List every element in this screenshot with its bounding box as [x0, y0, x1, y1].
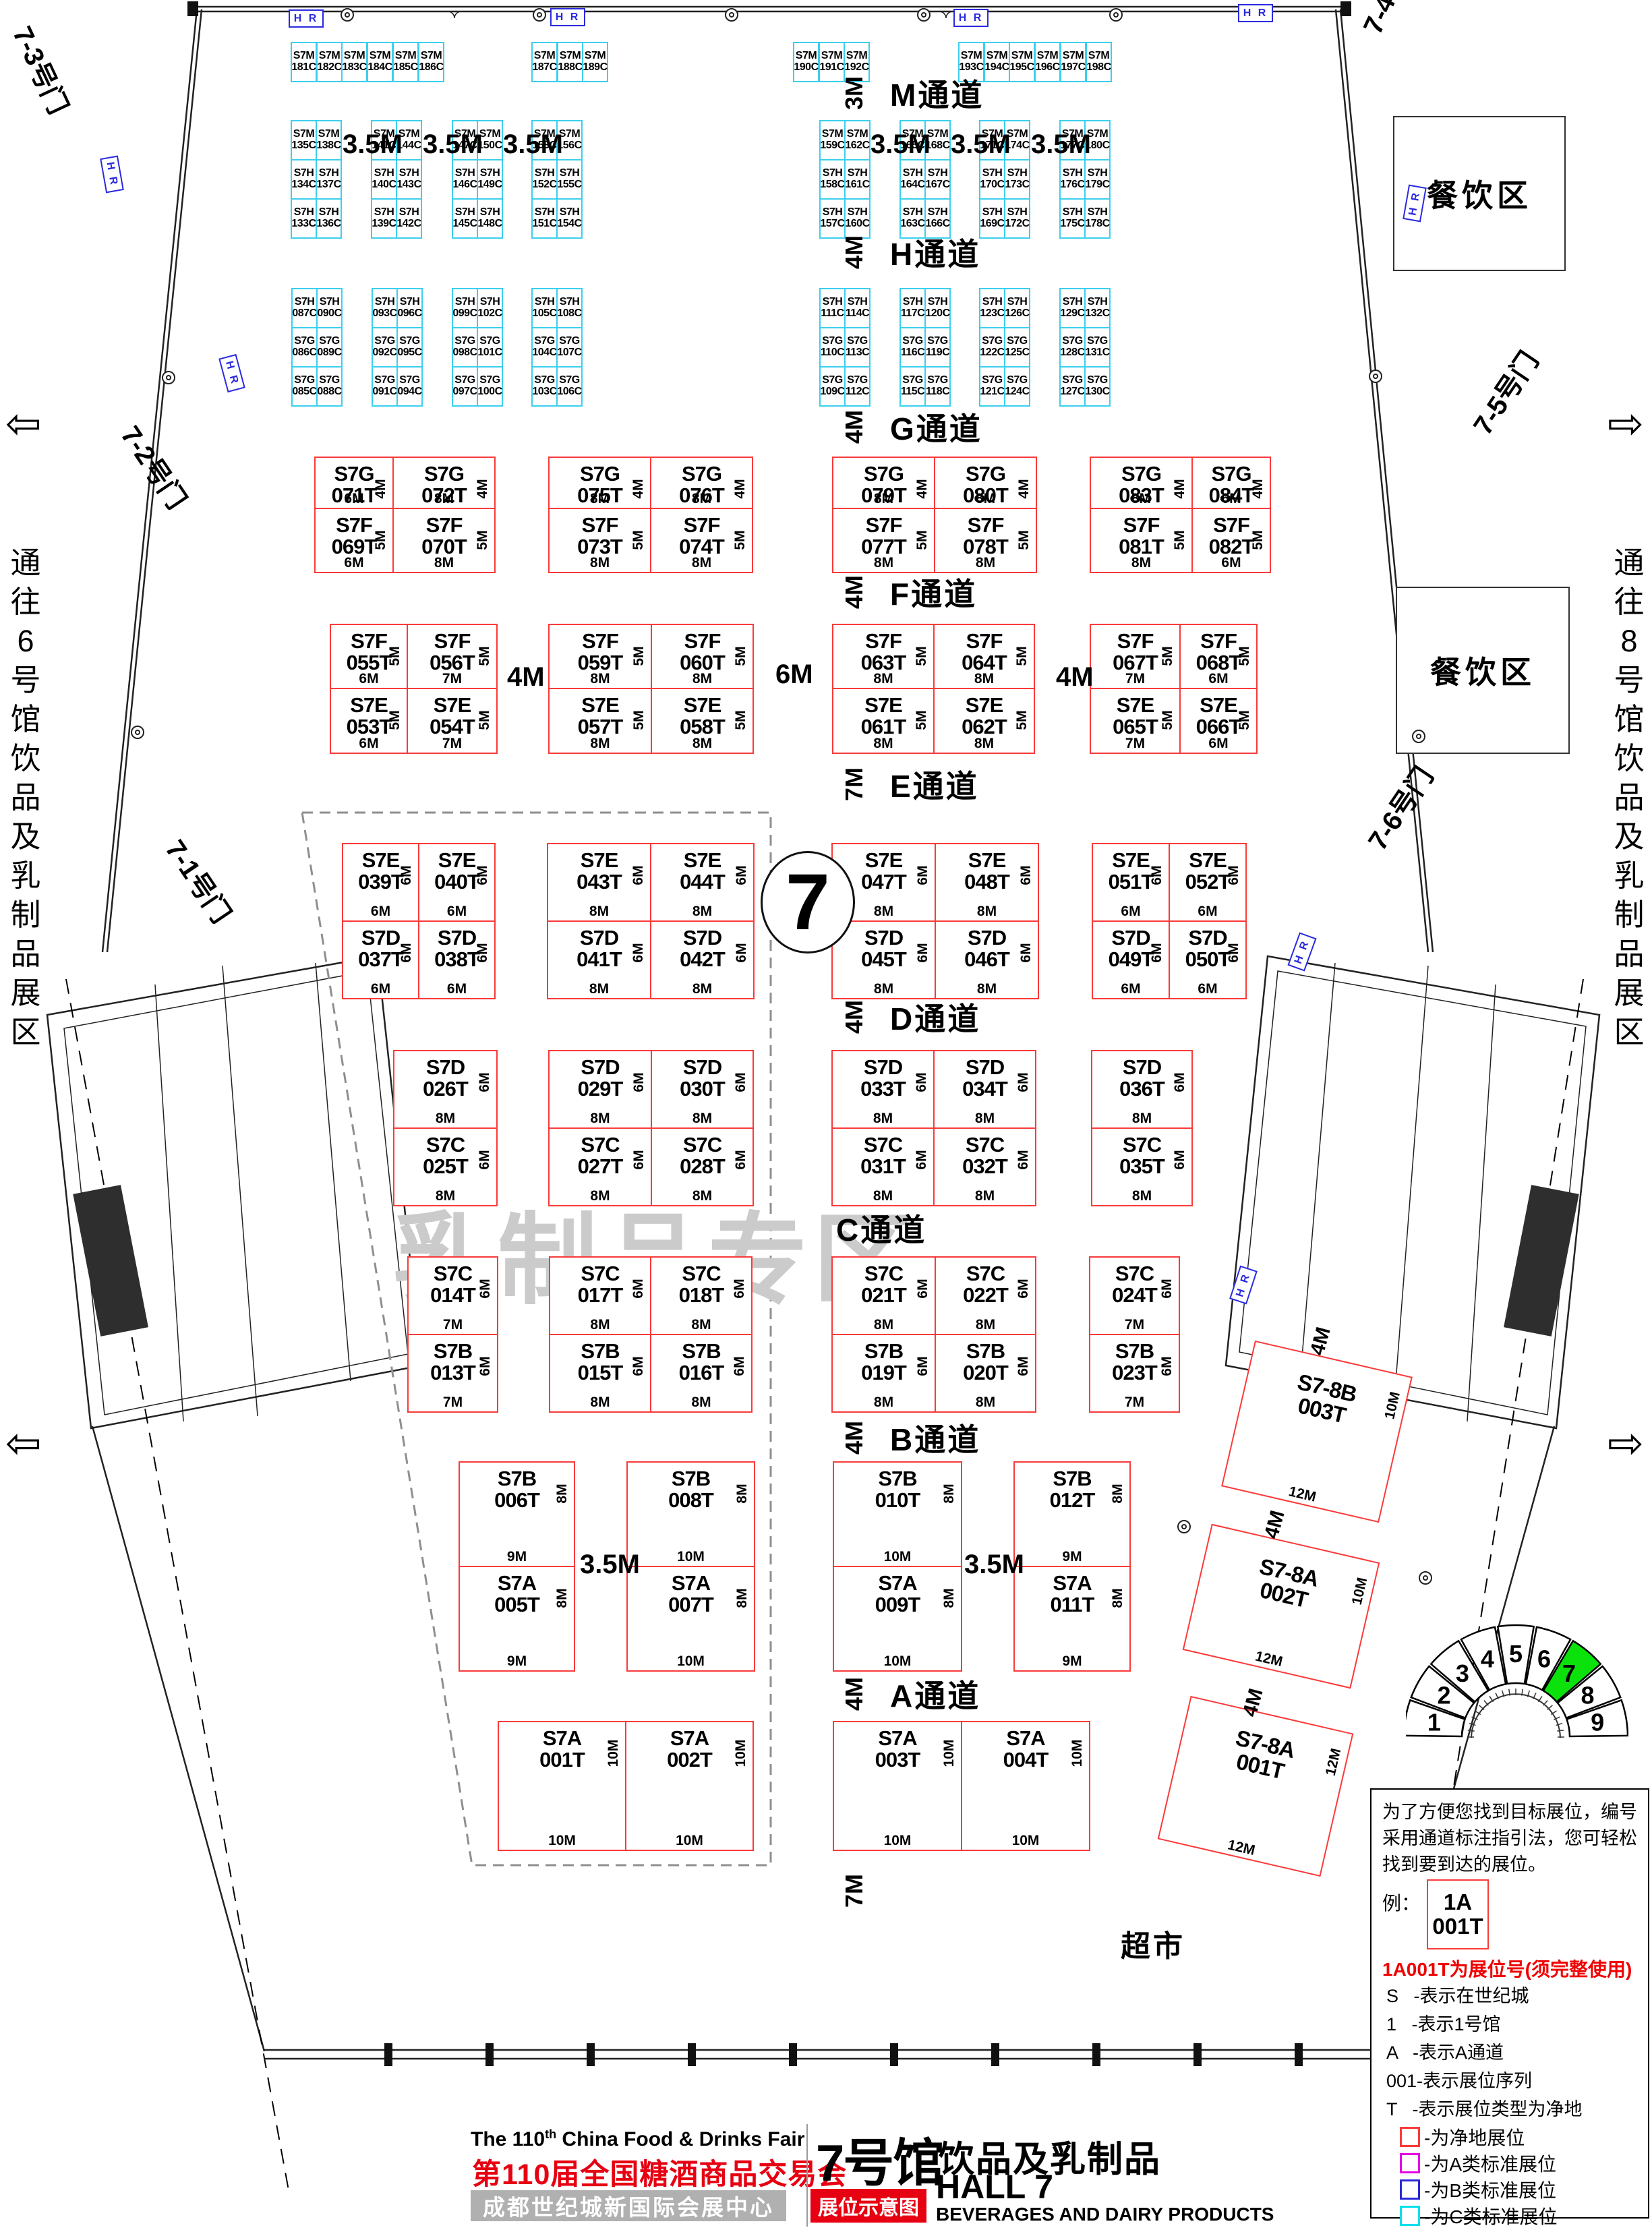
booth-side-dim: 5M — [733, 637, 749, 676]
booth-S7H-154C: S7H154C — [556, 198, 583, 239]
booth-S7H-111C: S7H111C — [819, 288, 846, 328]
booth-S7D-049T: S7D049T6M6M — [1092, 920, 1170, 999]
booth-side-dim: 6M — [477, 1347, 494, 1386]
booth-side-dim: 10M — [941, 1734, 957, 1773]
booth-S7E-058T: S7E058T8M5M — [651, 688, 754, 754]
booth-S7G-131C: S7G131C — [1084, 327, 1111, 368]
booth-side-dim: 5M — [477, 701, 493, 740]
booth-S7M-162C: S7M162C — [844, 120, 871, 160]
booth-S7H-146C: S7H146C — [452, 159, 478, 200]
booth-side-dim: 6M — [477, 1269, 494, 1308]
booth-bottom-dim: 8M — [652, 1111, 753, 1127]
booth-S7H-102C: S7H102C — [477, 288, 503, 328]
booth-S7D-045T: S7D045T8M6M — [831, 920, 936, 999]
booth-S7G-116C: S7G116C — [899, 327, 926, 368]
booth-side-dim: 6M — [732, 1269, 748, 1308]
booth-side-dim: 5M — [475, 521, 491, 560]
booth-side-dim: 4M — [732, 469, 748, 508]
booth-S7H-133C: S7H133C — [291, 198, 317, 239]
booth-S7C-024T: S7C024T7M6M — [1089, 1256, 1180, 1335]
booth-side-dim: 6M — [475, 933, 491, 972]
booth-side-dim: 4M — [475, 469, 491, 508]
booth-S7H-099C: S7H099C — [452, 288, 478, 328]
booth-side-dim: 5M — [630, 521, 647, 560]
arrow-to-hall6-icon: ⇦ — [5, 402, 42, 445]
booth-S7G-084T: S7G084T6M4M — [1191, 457, 1271, 509]
fair-title-cn: 第110届全国糖酒商品交易会 — [472, 2151, 847, 2193]
column-marker-icon — [725, 8, 738, 22]
booth-side-dim: 5M — [387, 637, 403, 676]
booth-bottom-dim: 6M — [1170, 981, 1245, 997]
legend-item: -为A类标准展位 — [1400, 2150, 1637, 2176]
booth-S7F-055T: S7F055T6M5M — [330, 624, 408, 689]
booth-side-dim: 8M — [734, 1579, 750, 1618]
booth-bottom-dim: 6M — [1093, 981, 1169, 997]
booth-S7F-059T: S7F059T8M5M — [548, 624, 652, 689]
booth-S7F-069T: S7F069T6M5M — [314, 508, 394, 573]
booth-S7B-013T: S7B013T7M6M — [407, 1334, 498, 1413]
column-marker-icon — [1419, 1571, 1432, 1585]
booth-side-dim: 6M — [1172, 1140, 1188, 1179]
booth-S7G-103C: S7G103C — [531, 366, 558, 407]
booth-side-dim: 10M — [606, 1734, 622, 1773]
legend-items: -为净地展位-为A类标准展位-为B类标准展位-为C类标准展位-为D类标准展位 — [1382, 2123, 1637, 2230]
booth-bottom-dim: 6M — [419, 981, 494, 997]
booth-side-dim: 6M — [1015, 1063, 1032, 1102]
booth-S7E-054T: S7E054T7M5M — [407, 688, 498, 754]
booth-bottom-dim: 8M — [652, 1188, 753, 1204]
booth-side-dim: 6M — [733, 1140, 749, 1179]
booth-S7H-152C: S7H152C — [531, 159, 558, 200]
booth-bottom-dim: 9M — [1015, 1653, 1129, 1670]
booth-side-dim: 10M — [733, 1734, 749, 1773]
booth-side-dim: 8M — [554, 1579, 570, 1618]
booth-S7G-124C: S7G124C — [1004, 366, 1030, 407]
gap-width-label: 3.5M — [951, 129, 1011, 160]
booth-S7F-074T: S7F074T8M5M — [650, 508, 753, 573]
booth-side-dim: 6M — [1226, 933, 1242, 972]
booth-side-dim: 8M — [1110, 1474, 1126, 1513]
booth-bottom-dim: 6M — [343, 904, 418, 920]
booth-side-dim: 6M — [1015, 1140, 1032, 1179]
booth-S7H-158C: S7H158C — [819, 159, 846, 200]
dining-area: 餐饮区 — [1396, 587, 1570, 754]
booth-S7H-105C: S7H105C — [531, 288, 558, 328]
booth-bottom-dim: 8M — [935, 1188, 1035, 1204]
column-marker-icon — [131, 726, 144, 739]
booth-S7C-017T: S7C017T8M6M — [549, 1256, 651, 1335]
booth-S7H-173C: S7H173C — [1004, 159, 1030, 200]
booth-bottom-dim: 8M — [651, 1395, 751, 1411]
map-type-badge: 展位示意图 — [810, 2189, 926, 2223]
booth-S7E-040T: S7E040T6M6M — [418, 843, 496, 922]
booth-side-dim: 5M — [631, 637, 647, 676]
booth-S7G-083T: S7G083T8M4M — [1090, 457, 1193, 509]
booth-S7M-196C: S7M196C — [1034, 42, 1061, 82]
booth-S7C-032T: S7C032T8M6M — [933, 1127, 1036, 1206]
booth-bottom-dim: 9M — [1015, 1549, 1129, 1565]
booth-side-dim: 6M — [1172, 1063, 1188, 1102]
side-label-left: 通往6号馆饮品及乳制品展区 — [8, 544, 43, 1052]
booth-S7F-067T: S7F067T7M5M — [1090, 624, 1181, 689]
booth-S7M-183C: S7M183C — [341, 42, 367, 82]
minimap-hall-number: 1 — [1427, 1709, 1441, 1736]
booth-S7D-038T: S7D038T6M6M — [418, 920, 496, 999]
booth-S7G-094C: S7G094C — [396, 366, 423, 407]
booth-bottom-dim: 10M — [628, 1549, 754, 1565]
booth-S7E-052T: S7E052T6M6M — [1169, 843, 1247, 922]
booth-S7F-056T: S7F056T7M5M — [407, 624, 498, 689]
booth-S7F-077T: S7F077T8M5M — [832, 508, 935, 573]
booth-side-dim: 5M — [732, 521, 748, 560]
booth-S7H-090C: S7H090C — [316, 288, 343, 328]
minimap-hall-number: 5 — [1509, 1640, 1523, 1668]
booth-S7G-098C: S7G098C — [452, 327, 478, 368]
booth-S7G-089C: S7G089C — [316, 327, 343, 368]
booth-side-dim: 5M — [914, 701, 930, 740]
booth-S7B-023T: S7B023T7M6M — [1089, 1334, 1180, 1413]
booth-S7H-093C: S7H093C — [372, 288, 398, 328]
fire-hydrant-icon: H R — [1238, 4, 1273, 22]
booth-bottom-dim: 8M — [548, 904, 650, 920]
aisle-label-E: 7ME通道 — [836, 767, 979, 802]
hall-name-en: HALL 7 — [936, 2167, 1053, 2206]
booth-side-dim: 5M — [1250, 521, 1266, 560]
booth-side-dim: 5M — [373, 521, 389, 560]
booth-S7G-125C: S7G125C — [1004, 327, 1030, 368]
booth-bottom-dim: 8M — [936, 1395, 1035, 1411]
code-decode-lines: S -表示在世纪城1 -表示1号馆A -表示A通道001-表示展位序列T -表示… — [1382, 1982, 1637, 2123]
booth-bottom-dim: 10M — [834, 1549, 961, 1565]
booth-bottom-dim: 8M — [833, 1188, 933, 1204]
column-marker-icon — [917, 8, 931, 22]
booth-S7B-006T: S7B006T9M8M — [459, 1461, 575, 1567]
booth-S7M-194C: S7M194C — [984, 42, 1010, 82]
aisle-label-F: 4MF通道 — [836, 575, 977, 610]
column-marker-icon — [162, 371, 175, 384]
booth-S7G-119C: S7G119C — [924, 327, 951, 368]
booth-side-dim: 6M — [1149, 933, 1165, 972]
booth-S7H-139C: S7H139C — [371, 198, 397, 239]
gap-width-label: 3.5M — [871, 129, 931, 160]
booth-side-dim: 5M — [1014, 637, 1030, 676]
booth-S7F-063T: S7F063T8M5M — [832, 624, 935, 689]
column-marker-icon — [1109, 8, 1123, 22]
booth-side-dim: 5M — [1160, 701, 1176, 740]
booth-S7H-134C: S7H134C — [291, 159, 317, 200]
booth-S7C-022T: S7C022T8M6M — [935, 1256, 1036, 1335]
booth-S7D-033T: S7D033T8M6M — [831, 1050, 935, 1129]
booth-side-dim: 6M — [630, 1269, 647, 1308]
arrow-to-hall8-icon: ⇨ — [1607, 402, 1644, 445]
booth-S7G-101C: S7G101C — [477, 327, 503, 368]
booth-side-dim: 6M — [734, 856, 750, 895]
booth-S7M-197C: S7M197C — [1060, 42, 1086, 82]
booth-side-dim: 6M — [1159, 1347, 1175, 1386]
legend-panel: 为了方便您找到目标展位，编号采用通道标注指引法，您可轻松找到要到达的展位。 例：… — [1370, 1788, 1649, 2219]
gap-width-label: 3.5M — [423, 129, 483, 160]
booth-bottom-dim: 7M — [1090, 1395, 1179, 1411]
booth-S7E-044T: S7E044T8M6M — [650, 843, 755, 922]
booth-S7G-076T: S7G076T8M4M — [650, 457, 753, 509]
booth-S7A-011T: S7A011T9M8M — [1013, 1566, 1131, 1672]
booth-S7G-115C: S7G115C — [899, 366, 926, 407]
booth-S7C-025T: S7C025T8M6M — [393, 1127, 498, 1206]
booth-side-dim: 5M — [477, 637, 493, 676]
booth-S7G-118C: S7G118C — [924, 366, 951, 407]
aisle-label-M: 3MM通道 — [836, 76, 984, 111]
booth-S7C-021T: S7C021T8M6M — [831, 1256, 936, 1335]
booth-S7H-096C: S7H096C — [396, 288, 423, 328]
booth-side-dim: 5M — [1237, 637, 1253, 676]
booth-side-dim: 6M — [631, 1140, 647, 1179]
booth-S7M-198C: S7M198C — [1086, 42, 1112, 82]
booth-S7A-009T: S7A009T10M8M — [833, 1566, 962, 1672]
booth-S7G-122C: S7G122C — [979, 327, 1005, 368]
gap-width-label: 4M — [507, 662, 545, 693]
booth-side-dim: 8M — [554, 1474, 570, 1513]
decode-line: 001-表示展位序列 — [1386, 2067, 1637, 2095]
minimap-hall-number: 7 — [1562, 1660, 1576, 1687]
booth-S7H-155C: S7H155C — [556, 159, 583, 200]
booth-side-dim: 6M — [399, 856, 415, 895]
gap-width-label: 3.5M — [964, 1550, 1024, 1580]
booth-S7M-195C: S7M195C — [1009, 42, 1035, 82]
booth-side-dim: 4M — [373, 469, 389, 508]
booth-S7E-066T: S7E066T6M5M — [1179, 688, 1258, 754]
booth-side-dim: 8M — [941, 1579, 957, 1618]
booth-S7E-048T: S7E048T8M6M — [935, 843, 1039, 922]
booth-bottom-dim: 10M — [499, 1833, 625, 1849]
booth-side-dim: 6M — [631, 1063, 647, 1102]
booth-side-dim: 6M — [477, 1140, 493, 1179]
legend-item: -为B类标准展位 — [1400, 2176, 1637, 2202]
legend-item: -为C类标准展位 — [1400, 2202, 1637, 2229]
booth-S7H-108C: S7H108C — [556, 288, 583, 328]
aisle-label-A: 4MA通道 — [836, 1676, 980, 1711]
booth-S7B-010T: S7B010T10M8M — [833, 1461, 962, 1567]
booth-S7H-142C: S7H142C — [396, 198, 422, 239]
booth-bottom-dim: 8M — [833, 1111, 933, 1127]
booth-bottom-dim: 6M — [1093, 904, 1169, 920]
booth-S7E-065T: S7E065T7M5M — [1090, 688, 1181, 754]
booth-S7A-001T: S7A001T10M10M — [498, 1721, 626, 1851]
gap-width-label: 3.5M — [503, 129, 563, 160]
booth-S7G-104C: S7G104C — [531, 327, 558, 368]
booth-side-dim: 6M — [915, 1347, 931, 1386]
booth-bottom-dim: 6M — [343, 981, 418, 997]
booth-S7H-151C: S7H151C — [531, 198, 558, 239]
decode-line: A -表示A通道 — [1386, 2038, 1637, 2067]
booth-S7G-071T: S7G071T6M4M — [314, 457, 394, 509]
booth-S7F-073T: S7F073T8M5M — [548, 508, 651, 573]
booth-side-dim: 6M — [915, 1269, 931, 1308]
booth-S7G-088C: S7G088C — [316, 366, 343, 407]
decode-line: T -表示展位类型为净地 — [1386, 2095, 1637, 2123]
booth-bottom-dim: 10M — [626, 1833, 753, 1849]
booth-side-dim: 4M — [1250, 469, 1266, 508]
legend-swatch — [1400, 2153, 1420, 2173]
booth-S7G-085C: S7G085C — [291, 366, 318, 407]
gap-width-label: 3.5M — [580, 1550, 640, 1580]
booth-bottom-dim: 8M — [936, 904, 1038, 920]
booth-S7E-057T: S7E057T8M5M — [548, 688, 652, 754]
hall7-floor-plan: 乳制品专区 7 超市 ⇦ ⇦ ⇨ ⇨ 通往6号馆饮品及乳制品展区 通往8号馆饮品… — [0, 0, 1652, 2230]
booth-S7E-062T: S7E062T8M5M — [933, 688, 1035, 754]
fair-title-sup: th — [545, 2128, 556, 2141]
booth-S7M-159C: S7M159C — [819, 120, 846, 160]
booth-S7E-039T: S7E039T6M6M — [342, 843, 419, 922]
booth-S7D-034T: S7D034T8M6M — [933, 1050, 1036, 1129]
gap-width-label: 3.5M — [343, 129, 403, 160]
booth-S7H-164C: S7H164C — [899, 159, 926, 200]
booth-S7C-031T: S7C031T8M6M — [831, 1127, 935, 1206]
booth-S7H-148C: S7H148C — [477, 198, 503, 239]
booth-S7C-027T: S7C027T8M6M — [548, 1127, 652, 1206]
booth-S7M-186C: S7M186C — [418, 42, 444, 82]
booth-bottom-dim: 8M — [935, 1111, 1035, 1127]
booth-S7H-176C: S7H176C — [1059, 159, 1086, 200]
booth-side-dim: 6M — [914, 1063, 930, 1102]
booth-S7G-110C: S7G110C — [819, 327, 846, 368]
minimap-hall-number: 8 — [1581, 1682, 1595, 1709]
aisle-label-B: 4MB通道 — [836, 1420, 980, 1455]
booth-side-dim: 8M — [734, 1474, 750, 1513]
booth-S7H-145C: S7H145C — [452, 198, 478, 239]
booth-S7H-149C: S7H149C — [477, 159, 503, 200]
booth-S7H-117C: S7H117C — [899, 288, 926, 328]
booth-S7M-185C: S7M185C — [392, 42, 419, 82]
booth-S7B-019T: S7B019T8M6M — [831, 1334, 936, 1413]
booth-S7H-178C: S7H178C — [1084, 198, 1111, 239]
aisle-label-C: C通道 — [836, 1210, 926, 1245]
booth-S7A-003T: S7A003T10M10M — [833, 1721, 962, 1851]
fire-hydrant-icon: H R — [953, 9, 989, 27]
example-label: 例： — [1382, 1889, 1420, 1916]
booth-S7F-068T: S7F068T6M5M — [1179, 624, 1258, 689]
booth-S7H-170C: S7H170C — [979, 159, 1005, 200]
column-marker-icon — [1369, 370, 1382, 383]
example-note: 1A001T为展位号(须完整使用) — [1382, 1955, 1637, 1982]
decode-line: S -表示在世纪城 — [1386, 1982, 1637, 2010]
booth-bottom-dim: 8M — [550, 1111, 651, 1127]
booth-S7G-112C: S7G112C — [844, 366, 871, 407]
booth-S7M-184C: S7M184C — [367, 42, 393, 82]
booth-bottom-dim: 8M — [550, 1188, 651, 1204]
booth-S7M-188C: S7M188C — [557, 42, 583, 82]
booth-S7F-081T: S7F081T8M5M — [1090, 508, 1193, 573]
booth-bottom-dim: 8M — [833, 1395, 935, 1411]
minimap-hall-number: 2 — [1437, 1682, 1450, 1709]
booth-S7A-007T: S7A007T10M8M — [626, 1566, 755, 1672]
booth-side-dim: 4M — [914, 469, 931, 508]
gap-width-label: 4M — [1056, 662, 1094, 693]
booth-S7D-026T: S7D026T8M6M — [393, 1050, 498, 1129]
booth-bottom-dim: 6M — [419, 904, 494, 920]
booth-side-dim: 8M — [1110, 1579, 1126, 1618]
aisle-label-H: 4MH通道 — [836, 235, 980, 270]
booth-S7G-079T: S7G079T8M4M — [832, 457, 935, 509]
booth-S7B-012T: S7B012T9M8M — [1013, 1461, 1131, 1567]
booth-bottom-dim: 10M — [834, 1833, 961, 1849]
booth-S7G-121C: S7G121C — [979, 366, 1005, 407]
booth-side-dim: 6M — [732, 1347, 748, 1386]
fire-hydrant-icon: H R — [550, 8, 585, 26]
booth-side-dim: 4M — [1172, 469, 1188, 508]
booth-bottom-dim: 9M — [460, 1549, 574, 1565]
column-marker-icon — [1177, 1520, 1191, 1533]
booth-bottom-dim: 8M — [651, 981, 753, 997]
booth-side-dim: 6M — [1018, 856, 1034, 895]
booth-side-dim: 5M — [1016, 521, 1032, 560]
booth-S7G-080T: S7G080T8M4M — [934, 457, 1037, 509]
booth-S7H-175C: S7H175C — [1059, 198, 1086, 239]
booth-S7F-070T: S7F070T8M5M — [392, 508, 496, 573]
booth-side-dim: 5M — [1014, 701, 1030, 740]
booth-S7D-029T: S7D029T8M6M — [548, 1050, 652, 1129]
booth-side-dim: 6M — [915, 856, 931, 895]
column-marker-icon — [1412, 730, 1425, 743]
fair-title-en: The 110th China Food & Drinks Fair — [471, 2128, 804, 2151]
booth-S7H-114C: S7H114C — [844, 288, 871, 328]
booth-S7H-169C: S7H169C — [979, 198, 1005, 239]
booth-side-dim: 6M — [1018, 933, 1034, 972]
booth-side-dim: 5M — [914, 637, 930, 676]
booth-S7G-075T: S7G075T8M4M — [548, 457, 651, 509]
minimap-hall-number: 3 — [1456, 1660, 1469, 1687]
booth-bottom-dim: 8M — [651, 1317, 751, 1333]
left-stairs-hatch — [73, 1185, 148, 1337]
booth-S7H-143C: S7H143C — [396, 159, 422, 200]
booth-bottom-dim: 8M — [651, 904, 753, 920]
booth-side-dim: 6M — [399, 933, 415, 972]
booth-S7B-015T: S7B015T8M6M — [549, 1334, 651, 1413]
booth-side-dim: 6M — [733, 1063, 749, 1102]
booth-S7H-172C: S7H172C — [1004, 198, 1030, 239]
booth-S7M-190C: S7M190C — [793, 42, 819, 82]
booth-S7C-028T: S7C028T8M6M — [651, 1127, 754, 1206]
booth-S7D-036T: S7D036T8M6M — [1091, 1050, 1193, 1129]
booth-S7G-097C: S7G097C — [452, 366, 478, 407]
gap-width-label: 3.5M — [1031, 129, 1091, 160]
booth-S7E-061T: S7E061T8M5M — [832, 688, 935, 754]
column-marker-icon — [341, 8, 354, 22]
booth-S7A-005T: S7A005T9M8M — [459, 1566, 575, 1672]
booth-S7H-132C: S7H132C — [1084, 288, 1111, 328]
booth-S7H-161C: S7H161C — [844, 159, 871, 200]
booth-S7A-004T: S7A004T10M10M — [961, 1721, 1090, 1851]
booth-side-dim: 5M — [1172, 521, 1188, 560]
booth-S7G-127C: S7G127C — [1059, 366, 1086, 407]
booth-S7H-129C: S7H129C — [1059, 288, 1086, 328]
booth-S7G-107C: S7G107C — [556, 327, 583, 368]
booth-S7H-140C: S7H140C — [371, 159, 397, 200]
legend-swatch — [1400, 2206, 1420, 2226]
booth-S7H-120C: S7H120C — [924, 288, 951, 328]
column-marker-icon — [533, 8, 546, 22]
booth-side-dim: 6M — [914, 1140, 930, 1179]
booth-S7A-002T: S7A002T10M10M — [625, 1721, 754, 1851]
example-booth: 1A001T — [1427, 1879, 1489, 1949]
booth-bottom-dim: 8M — [936, 1317, 1035, 1333]
booth-S7D-050T: S7D050T6M6M — [1169, 920, 1247, 999]
booth-S7G-092C: S7G092C — [372, 327, 398, 368]
booth-S7H-126C: S7H126C — [1004, 288, 1030, 328]
booth-side-dim: 6M — [1226, 856, 1242, 895]
venue-name: 成都世纪城新国际会展中心 — [471, 2190, 786, 2221]
booth-bottom-dim: 8M — [1092, 1111, 1191, 1127]
booth-bottom-dim: 8M — [550, 1317, 650, 1333]
